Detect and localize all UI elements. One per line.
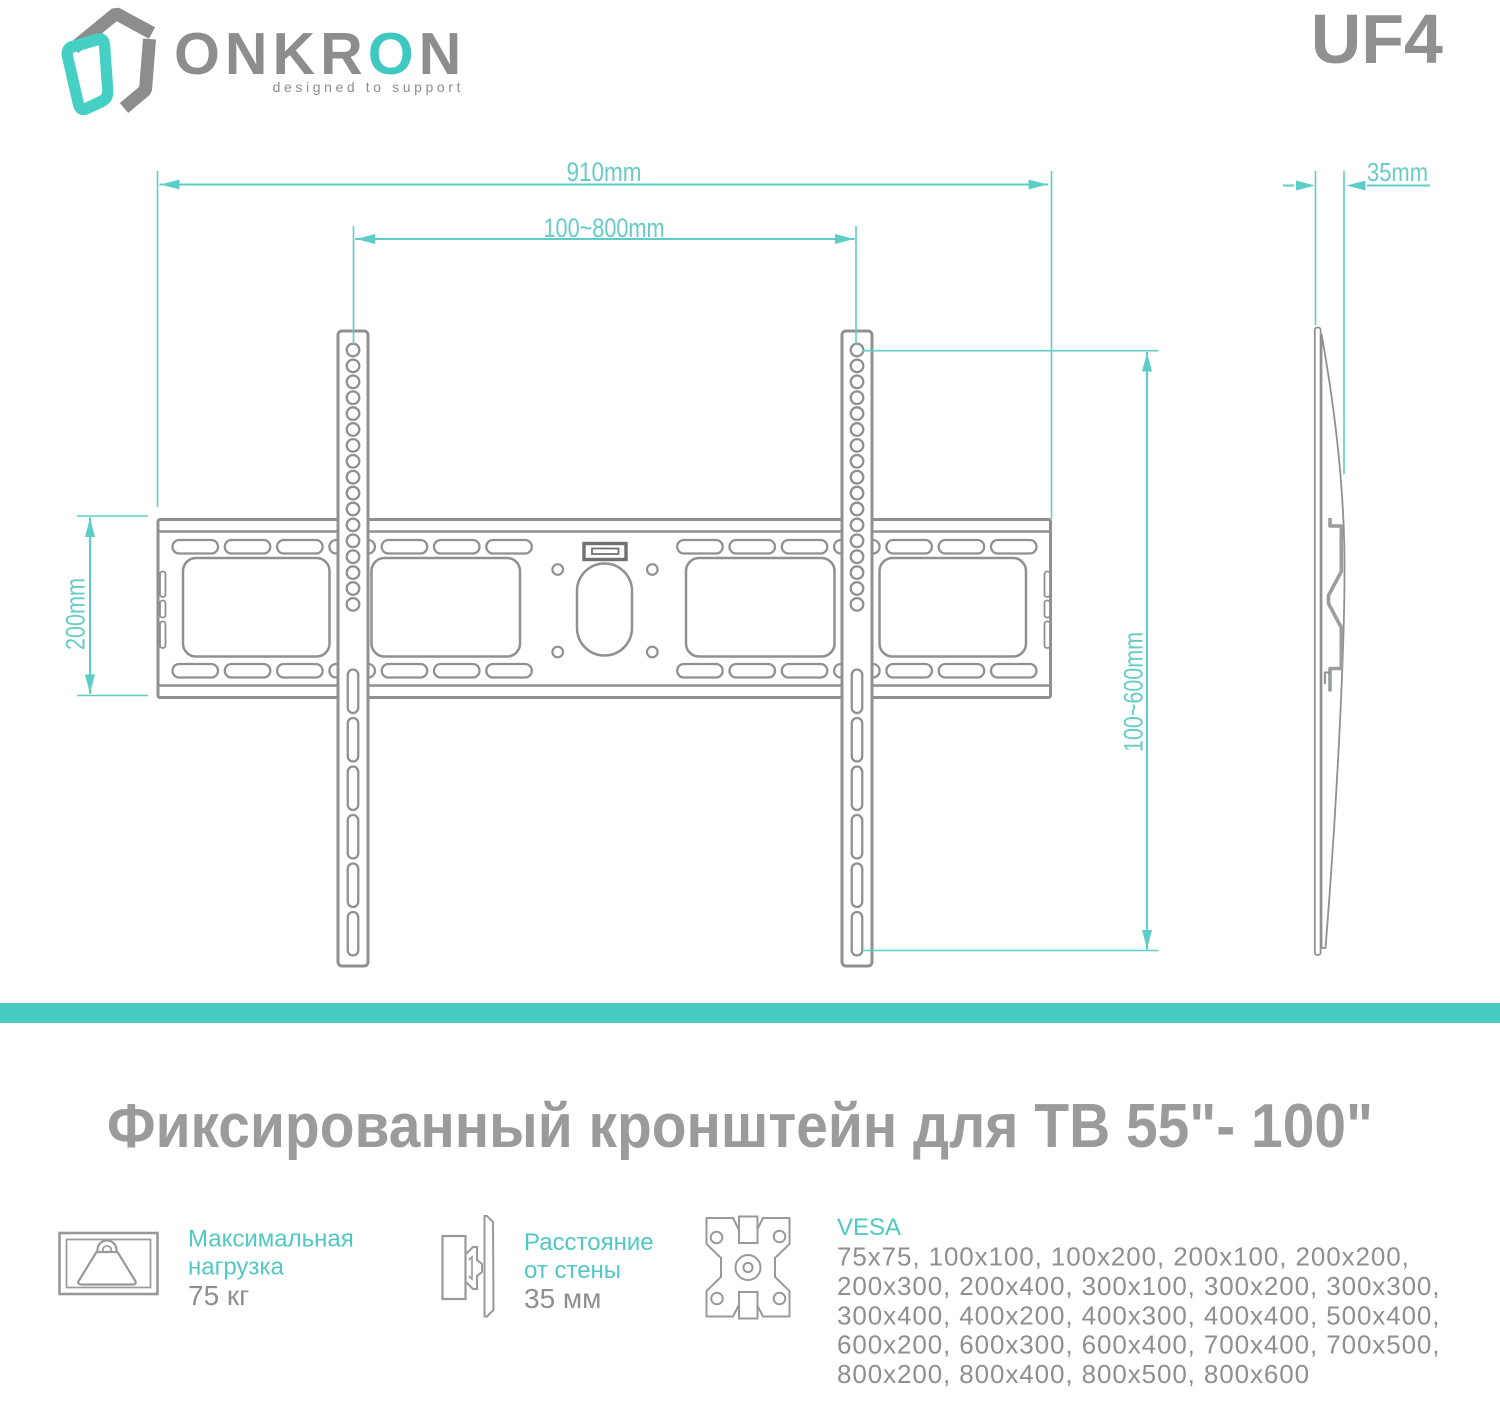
svg-text:200mm: 200mm	[61, 578, 91, 650]
svg-text:ONKRON: ONKRON	[174, 21, 466, 87]
svg-text:100~800mm: 100~800mm	[544, 213, 665, 243]
svg-text:75 кг: 75 кг	[188, 1280, 249, 1311]
svg-text:75x75, 100x100, 100x200, 200x1: 75x75, 100x100, 100x200, 200x100, 200x20…	[837, 1242, 1410, 1272]
svg-text:300x400, 400x200, 400x300, 400: 300x400, 400x200, 400x300, 400x400, 500x…	[837, 1300, 1440, 1330]
svg-text:800x200, 800x400, 800x500, 800: 800x200, 800x400, 800x500, 800x600	[837, 1359, 1310, 1389]
svg-text:Максимальная: Максимальная	[188, 1226, 354, 1253]
svg-text:910mm: 910mm	[567, 157, 642, 187]
svg-text:UF4: UF4	[1311, 0, 1443, 78]
svg-text:designed to support: designed to support	[273, 79, 464, 95]
svg-text:600x200, 600x300, 600x400, 700: 600x200, 600x300, 600x400, 700x400, 700x…	[837, 1330, 1440, 1360]
svg-text:35 мм: 35 мм	[524, 1283, 601, 1314]
svg-text:Фиксированный кронштейн для ТВ: Фиксированный кронштейн для ТВ 55"- 100"	[107, 1092, 1373, 1161]
svg-text:Расстояние: Расстояние	[524, 1229, 654, 1256]
svg-text:нагрузка: нагрузка	[188, 1254, 284, 1281]
svg-text:200x300, 200x400, 300x100, 300: 200x300, 200x400, 300x100, 300x200, 300x…	[837, 1271, 1440, 1301]
svg-text:35mm: 35mm	[1367, 157, 1428, 187]
svg-text:от стены: от стены	[524, 1257, 621, 1284]
svg-text:VESA: VESA	[837, 1214, 901, 1241]
svg-text:100~600mm: 100~600mm	[1119, 632, 1149, 752]
